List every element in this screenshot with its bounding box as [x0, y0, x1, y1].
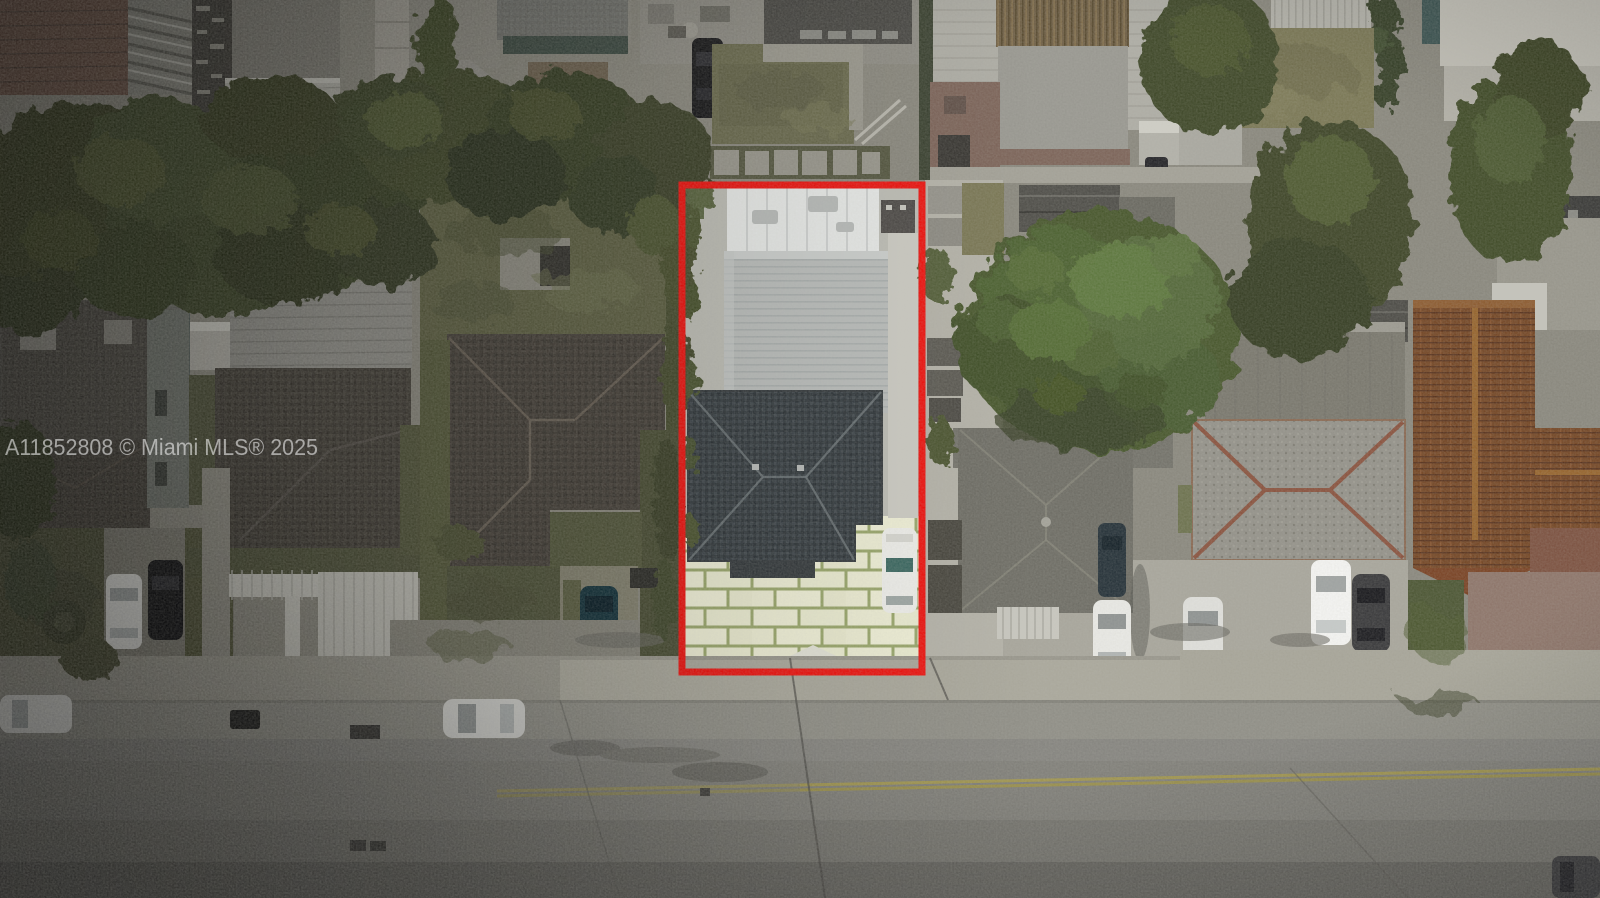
svg-text:A11852808 © Miami MLS® 2025: A11852808 © Miami MLS® 2025: [5, 434, 318, 460]
